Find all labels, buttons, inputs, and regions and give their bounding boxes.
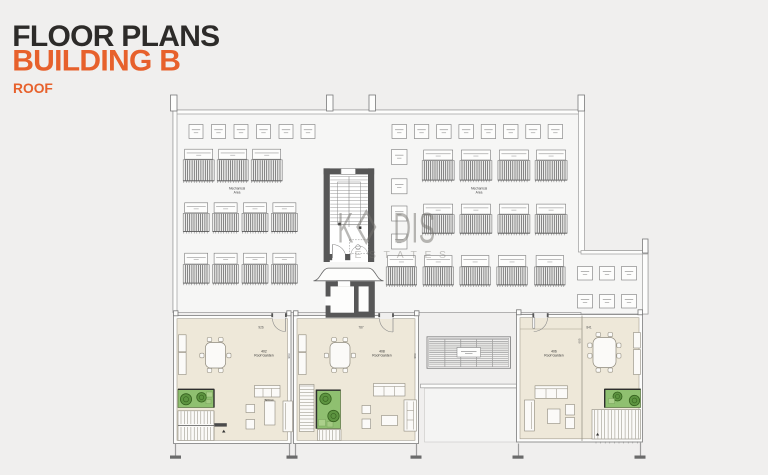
svg-text:BUILDING B: BUILDING B [12, 44, 180, 77]
svg-text:605: 605 [577, 338, 581, 343]
svg-text:Roof Garden: Roof Garden [254, 354, 274, 358]
svg-text:903: 903 [287, 353, 291, 358]
svg-text:DIS: DIS [394, 206, 436, 253]
svg-text:903: 903 [413, 353, 417, 358]
svg-text:ROOF: ROOF [13, 81, 53, 96]
svg-text:926: 926 [258, 325, 264, 329]
svg-text:841: 841 [586, 325, 592, 329]
svg-text:787: 787 [358, 325, 364, 329]
svg-text:Roof Garden: Roof Garden [372, 354, 392, 358]
svg-text:Roof Garden: Roof Garden [544, 354, 564, 358]
svg-text:Area: Area [476, 191, 483, 195]
svg-text:ESTATES: ESTATES [355, 250, 454, 261]
svg-text:K: K [338, 205, 354, 252]
svg-text:Area: Area [234, 191, 241, 195]
